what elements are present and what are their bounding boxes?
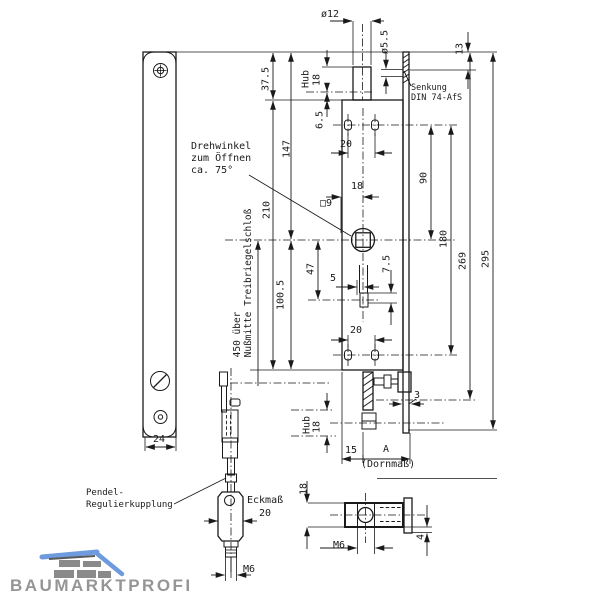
dim-side-m6: M6 — [333, 540, 345, 551]
dim-180: 180 — [439, 230, 450, 248]
coupling-pin — [230, 399, 240, 406]
label-drehwinkel-line3: ca. 75° — [191, 165, 233, 176]
label-drehwinkel-line2: zum Öffnen — [191, 153, 251, 164]
plate-screw-hole-bottom — [154, 411, 167, 424]
dim-hub-top-label: Hub — [301, 70, 312, 88]
dim-90: 90 — [419, 172, 430, 184]
label-pendel-line1: Pendel- — [86, 488, 124, 499]
logo-text: BAUMARKTPROFI — [10, 576, 193, 596]
side-view — [345, 498, 412, 533]
dim-rod-diameter: ø12 — [321, 9, 339, 20]
coupling-hole — [225, 496, 235, 506]
dim-A: A — [383, 444, 389, 455]
bolt-shaft — [374, 378, 384, 385]
dim-side-4: 4 — [416, 534, 427, 540]
pendulum-coupling — [218, 372, 243, 572]
drive-rod — [353, 67, 371, 100]
technical-drawing-page: ø12 ø5.5 Hub 18 6.5 37.5 147 210 100.5 4… — [0, 0, 600, 600]
dim-15: 15 — [345, 445, 357, 456]
dim-13: 13 — [455, 43, 466, 55]
dim-top-holes-20: 20 — [340, 139, 352, 150]
coupling-slider — [223, 438, 238, 458]
coupling-top-cap — [220, 372, 228, 386]
dim-square-9: □9 — [320, 198, 332, 209]
dim-37-5: 37.5 — [261, 67, 272, 91]
dim-3: 3 — [414, 390, 420, 401]
label-dornmass: (Dornmaß) — [361, 459, 415, 470]
label-nussmitte: 450 über Nußmitte Treibriegelschloß — [232, 209, 254, 358]
dim-side-18: 18 — [299, 483, 310, 495]
coupling-plate — [222, 410, 238, 442]
dim-295: 295 — [481, 250, 492, 268]
side-view-plate — [404, 498, 412, 533]
label-senkung-line2: DIN 74-AfS — [411, 93, 462, 103]
leader-lines — [174, 71, 411, 504]
senkung-leader — [404, 71, 411, 86]
label-drehwinkel-line1: Drehwinkel — [191, 141, 251, 152]
label-eckmass: Eckmaß — [247, 495, 283, 506]
dim-147: 147 — [282, 140, 293, 158]
dim-210: 210 — [262, 201, 273, 219]
dim-hub-bottom-value: 18 — [312, 421, 323, 433]
dim-6-5: 6.5 — [315, 111, 326, 129]
dim-100-5: 100.5 — [276, 280, 287, 310]
coupling-body — [218, 492, 243, 541]
dim-hole-diameter: ø5.5 — [380, 30, 391, 54]
dim-coupling-m6: M6 — [243, 564, 255, 575]
cover-plate — [143, 52, 176, 437]
label-nussmitte-line1: 450 über — [232, 209, 243, 358]
dim-5: 5 — [330, 273, 336, 284]
dim-bottom-holes-20: 20 — [350, 325, 362, 336]
dim-7-5: 7.5 — [382, 255, 393, 273]
dim-24: 24 — [153, 434, 165, 445]
logo-graphic — [42, 552, 122, 578]
dim-eckmass-20: 20 — [259, 508, 271, 519]
label-nussmitte-line2: Nußmitte Treibriegelschloß — [243, 209, 254, 358]
dim-269: 269 — [458, 252, 469, 270]
dim-hub-top-value: 18 — [312, 74, 323, 86]
faceplate — [403, 52, 409, 433]
dim-47: 47 — [306, 263, 317, 275]
label-pendel-line2: Regulierkupplung — [86, 500, 173, 511]
extension-lines — [145, 21, 497, 581]
dim-18-mid: 18 — [351, 181, 363, 192]
label-senkung-line1: Senkung — [411, 83, 447, 93]
